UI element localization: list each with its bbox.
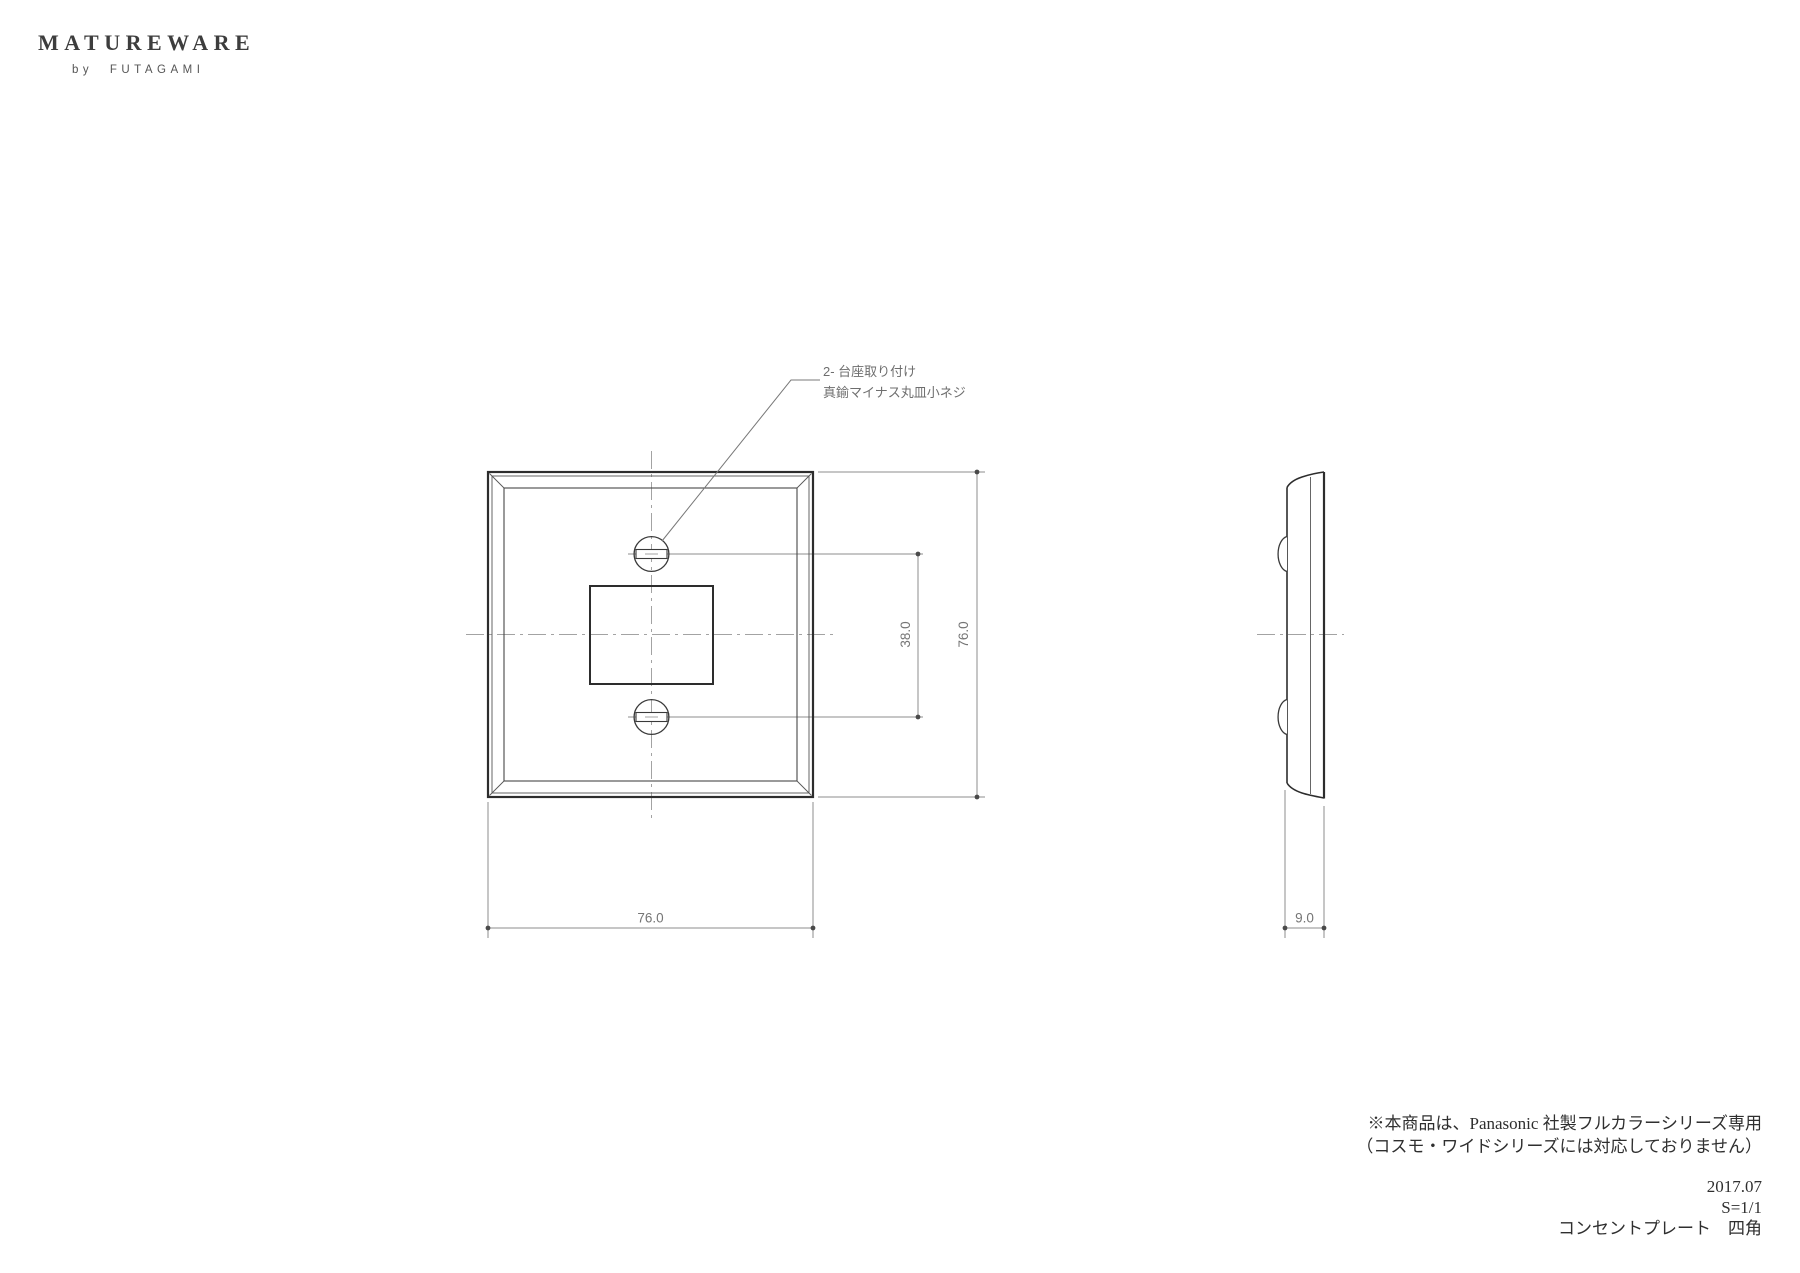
technical-drawing: 76.0 76.0 38.0 9.0	[0, 0, 1800, 1273]
drawing-sheet: MATUREWARE by FUTAGAMI	[0, 0, 1800, 1273]
title-block: 2017.07 S=1/1 コンセントプレート 四角	[1558, 1176, 1762, 1239]
dimension-dot	[486, 926, 491, 931]
dimension-label-screw-pitch: 38.0	[898, 621, 913, 647]
compatibility-note-line1: ※本商品は、Panasonic 社製フルカラーシリーズ専用	[1356, 1112, 1762, 1135]
dimension-width-bottom: 76.0	[486, 802, 816, 938]
dimension-dot	[1283, 926, 1288, 931]
drawing-title: コンセントプレート 四角	[1558, 1218, 1762, 1239]
dimension-label-width: 76.0	[637, 911, 663, 926]
leader-line	[662, 380, 820, 541]
side-screw-head-top	[1278, 537, 1287, 572]
drawing-date: 2017.07	[1558, 1176, 1762, 1197]
dimension-depth: 9.0	[1283, 790, 1327, 938]
screw-top	[634, 537, 669, 572]
side-top-profile	[1287, 472, 1324, 488]
screw-extension-lines	[628, 554, 923, 717]
side-view	[1278, 472, 1324, 799]
annotation-line1: 2- 台座取り付け	[823, 364, 916, 379]
dimension-dot	[975, 795, 980, 800]
drawing-scale: S=1/1	[1558, 1197, 1762, 1218]
compatibility-note: ※本商品は、Panasonic 社製フルカラーシリーズ専用 （コスモ・ワイドシリ…	[1356, 1112, 1762, 1158]
dimension-dot	[916, 552, 921, 557]
dimension-dot	[916, 715, 921, 720]
dimension-dot	[811, 926, 816, 931]
dimension-screw-pitch: 38.0	[898, 552, 920, 720]
annotation-line2: 真鍮マイナス丸皿小ネジ	[823, 385, 966, 400]
dimension-dot	[975, 470, 980, 475]
side-screw-head-bottom	[1278, 700, 1287, 735]
dimension-dot	[1322, 926, 1327, 931]
compatibility-note-line2: （コスモ・ワイドシリーズには対応しておりません）	[1356, 1135, 1762, 1158]
dimension-label-depth: 9.0	[1295, 911, 1314, 926]
side-bottom-profile	[1287, 783, 1324, 798]
dimension-label-height: 76.0	[956, 621, 971, 647]
